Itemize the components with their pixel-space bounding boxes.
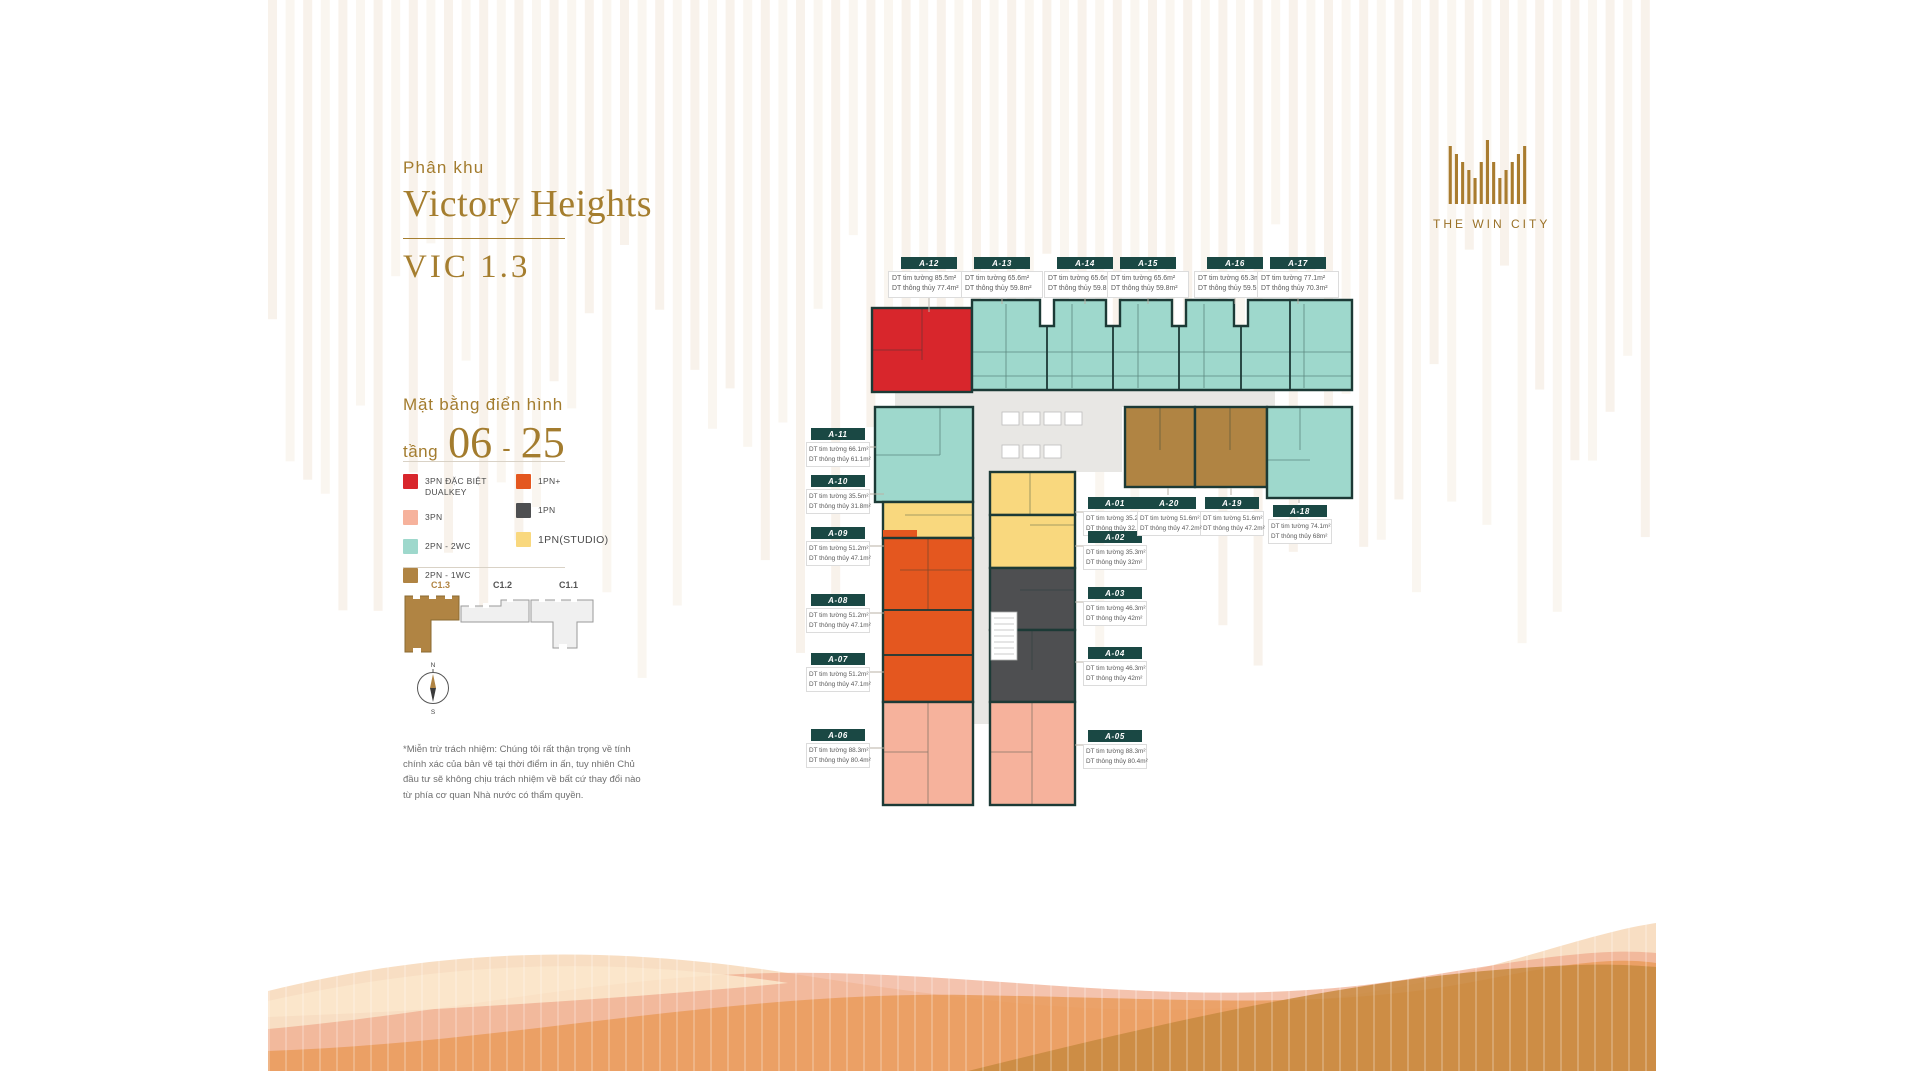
unit-net-area: DT thông thủy 32m² bbox=[1086, 558, 1144, 568]
unit-net-area: DT thông thủy 68m² bbox=[1271, 532, 1329, 542]
unit-callout-A-15: A-15DT tim tường 65.6m²DT thông thủy 59.… bbox=[1107, 257, 1189, 298]
unit-gross-area: DT tim tường 35.2m² bbox=[1086, 514, 1144, 524]
unit-gross-area: DT tim tường 88.3m² bbox=[809, 746, 867, 756]
unit-gross-area: DT tim tường 35.5m² bbox=[809, 492, 867, 502]
unit-gross-area: DT tim tường 46.3m² bbox=[1086, 664, 1144, 674]
unit-gross-area: DT tim tường 51.2m² bbox=[809, 670, 867, 680]
unit-net-area: DT thông thủy 80.4m² bbox=[809, 756, 867, 766]
unit-id-badge: A-12 bbox=[901, 257, 957, 269]
unit-id-badge: A-06 bbox=[811, 729, 865, 741]
unit-id-badge: A-07 bbox=[811, 653, 865, 665]
unit-area-box: DT tim tường 51.2m²DT thông thủy 47.1m² bbox=[806, 667, 870, 692]
unit-area-box: DT tim tường 77.1m²DT thông thủy 70.3m² bbox=[1257, 271, 1339, 298]
unit-net-area: DT thông thủy 47.2m² bbox=[1203, 524, 1261, 534]
unit-net-area: DT thông thủy 70.3m² bbox=[1261, 284, 1335, 294]
unit-net-area: DT thông thủy 31.8m² bbox=[809, 502, 867, 512]
unit-callout-A-09: A-09DT tim tường 51.2m²DT thông thủy 47.… bbox=[806, 527, 870, 566]
unit-area-box: DT tim tường 46.3m²DT thông thủy 42m² bbox=[1083, 661, 1147, 686]
unit-gross-area: DT tim tường 51.2m² bbox=[809, 544, 867, 554]
unit-callout-A-03: A-03DT tim tường 46.3m²DT thông thủy 42m… bbox=[1083, 587, 1147, 626]
unit-gross-area: DT tim tường 65.6m² bbox=[1111, 274, 1185, 284]
unit-gross-area: DT tim tường 51.6m² bbox=[1140, 514, 1198, 524]
unit-callout-A-19: A-19DT tim tường 51.6m²DT thông thủy 47.… bbox=[1200, 497, 1264, 536]
unit-callout-A-02: A-02DT tim tường 35.3m²DT thông thủy 32m… bbox=[1083, 531, 1147, 570]
unit-area-box: DT tim tường 65.6m²DT thông thủy 59.8m² bbox=[961, 271, 1043, 298]
unit-gross-area: DT tim tường 77.1m² bbox=[1261, 274, 1335, 284]
unit-id-badge: A-15 bbox=[1120, 257, 1176, 269]
content-area: Phân khu Victory Heights VIC 1.3 Mặt bằn… bbox=[268, 0, 1656, 1071]
unit-area-box: DT tim tường 88.3m²DT thông thủy 80.4m² bbox=[806, 743, 870, 768]
unit-callout-A-13: A-13DT tim tường 65.6m²DT thông thủy 59.… bbox=[961, 257, 1043, 298]
unit-id-badge: A-17 bbox=[1270, 257, 1326, 269]
unit-net-area: DT thông thủy 80.4m² bbox=[1086, 757, 1144, 767]
unit-id-badge: A-10 bbox=[811, 475, 865, 487]
unit-gross-area: DT tim tường 88.3m² bbox=[1086, 747, 1144, 757]
unit-callout-A-08: A-08DT tim tường 51.2m²DT thông thủy 47.… bbox=[806, 594, 870, 633]
unit-gross-area: DT tim tường 65.6m² bbox=[965, 274, 1039, 284]
unit-area-box: DT tim tường 51.2m²DT thông thủy 47.1m² bbox=[806, 541, 870, 566]
unit-id-badge: A-20 bbox=[1142, 497, 1196, 509]
unit-id-badge: A-19 bbox=[1205, 497, 1259, 509]
unit-id-badge: A-01 bbox=[1088, 497, 1142, 509]
unit-gross-area: DT tim tường 66.1m² bbox=[809, 445, 867, 455]
unit-callout-A-20: A-20DT tim tường 51.6m²DT thông thủy 47.… bbox=[1137, 497, 1201, 536]
unit-id-badge: A-04 bbox=[1088, 647, 1142, 659]
unit-area-box: DT tim tường 85.5m²DT thông thủy 77.4m² bbox=[888, 271, 970, 298]
unit-id-badge: A-09 bbox=[811, 527, 865, 539]
unit-id-badge: A-11 bbox=[811, 428, 865, 440]
unit-area-box: DT tim tường 51.2m²DT thông thủy 47.1m² bbox=[806, 608, 870, 633]
unit-id-badge: A-14 bbox=[1057, 257, 1113, 269]
unit-area-box: DT tim tường 51.6m²DT thông thủy 47.2m² bbox=[1200, 511, 1264, 536]
unit-net-area: DT thông thủy 61.1m² bbox=[809, 455, 867, 465]
unit-gross-area: DT tim tường 51.6m² bbox=[1203, 514, 1261, 524]
unit-area-box: DT tim tường 35.5m²DT thông thủy 31.8m² bbox=[806, 489, 870, 514]
unit-area-box: DT tim tường 74.1m²DT thông thủy 68m² bbox=[1268, 519, 1332, 544]
unit-area-box: DT tim tường 66.1m²DT thông thủy 61.1m² bbox=[806, 442, 870, 467]
unit-gross-area: DT tim tường 51.2m² bbox=[809, 611, 867, 621]
unit-id-badge: A-03 bbox=[1088, 587, 1142, 599]
unit-callout-A-04: A-04DT tim tường 46.3m²DT thông thủy 42m… bbox=[1083, 647, 1147, 686]
unit-area-box: DT tim tường 35.3m²DT thông thủy 32m² bbox=[1083, 545, 1147, 570]
unit-net-area: DT thông thủy 47.1m² bbox=[809, 554, 867, 564]
unit-net-area: DT thông thủy 42m² bbox=[1086, 614, 1144, 624]
unit-callout-A-11: A-11DT tim tường 66.1m²DT thông thủy 61.… bbox=[806, 428, 870, 467]
unit-gross-area: DT tim tường 35.3m² bbox=[1086, 548, 1144, 558]
unit-callouts: A-01DT tim tường 35.2m²DT thông thủy 32.… bbox=[268, 0, 1656, 1071]
unit-area-box: DT tim tường 46.3m²DT thông thủy 42m² bbox=[1083, 601, 1147, 626]
unit-area-box: DT tim tường 88.3m²DT thông thủy 80.4m² bbox=[1083, 744, 1147, 769]
unit-id-badge: A-13 bbox=[974, 257, 1030, 269]
brochure-page: Phân khu Victory Heights VIC 1.3 Mặt bằn… bbox=[0, 0, 1920, 1071]
unit-gross-area: DT tim tường 46.3m² bbox=[1086, 604, 1144, 614]
unit-net-area: DT thông thủy 77.4m² bbox=[892, 284, 966, 294]
unit-net-area: DT thông thủy 47.2m² bbox=[1140, 524, 1198, 534]
unit-callout-A-17: A-17DT tim tường 77.1m²DT thông thủy 70.… bbox=[1257, 257, 1339, 298]
unit-id-badge: A-08 bbox=[811, 594, 865, 606]
unit-area-box: DT tim tường 65.6m²DT thông thủy 59.8m² bbox=[1107, 271, 1189, 298]
unit-id-badge: A-16 bbox=[1207, 257, 1263, 269]
unit-callout-A-18: A-18DT tim tường 74.1m²DT thông thủy 68m… bbox=[1268, 505, 1332, 544]
unit-net-area: DT thông thủy 47.1m² bbox=[809, 621, 867, 631]
unit-net-area: DT thông thủy 59.8m² bbox=[965, 284, 1039, 294]
unit-id-badge: A-02 bbox=[1088, 531, 1142, 543]
unit-id-badge: A-18 bbox=[1273, 505, 1327, 517]
unit-callout-A-10: A-10DT tim tường 35.5m²DT thông thủy 31.… bbox=[806, 475, 870, 514]
unit-callout-A-07: A-07DT tim tường 51.2m²DT thông thủy 47.… bbox=[806, 653, 870, 692]
unit-callout-A-05: A-05DT tim tường 88.3m²DT thông thủy 80.… bbox=[1083, 730, 1147, 769]
unit-callout-A-06: A-06DT tim tường 88.3m²DT thông thủy 80.… bbox=[806, 729, 870, 768]
unit-callout-A-12: A-12DT tim tường 85.5m²DT thông thủy 77.… bbox=[888, 257, 970, 298]
unit-net-area: DT thông thủy 59.8m² bbox=[1111, 284, 1185, 294]
unit-net-area: DT thông thủy 47.1m² bbox=[809, 680, 867, 690]
unit-gross-area: DT tim tường 85.5m² bbox=[892, 274, 966, 284]
unit-gross-area: DT tim tường 74.1m² bbox=[1271, 522, 1329, 532]
unit-id-badge: A-05 bbox=[1088, 730, 1142, 742]
unit-area-box: DT tim tường 51.6m²DT thông thủy 47.2m² bbox=[1137, 511, 1201, 536]
unit-net-area: DT thông thủy 42m² bbox=[1086, 674, 1144, 684]
